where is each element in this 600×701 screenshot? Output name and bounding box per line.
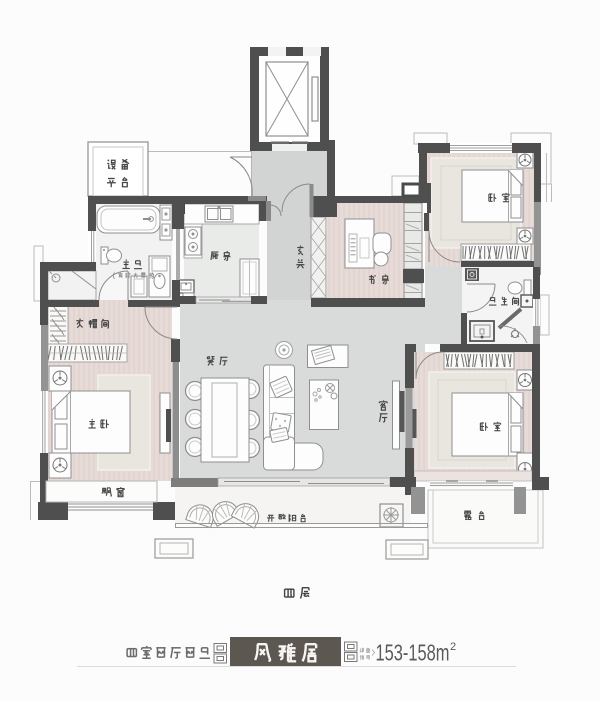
svg-text:153-158m: 153-158m [376,640,450,666]
svg-text:2: 2 [450,641,456,653]
